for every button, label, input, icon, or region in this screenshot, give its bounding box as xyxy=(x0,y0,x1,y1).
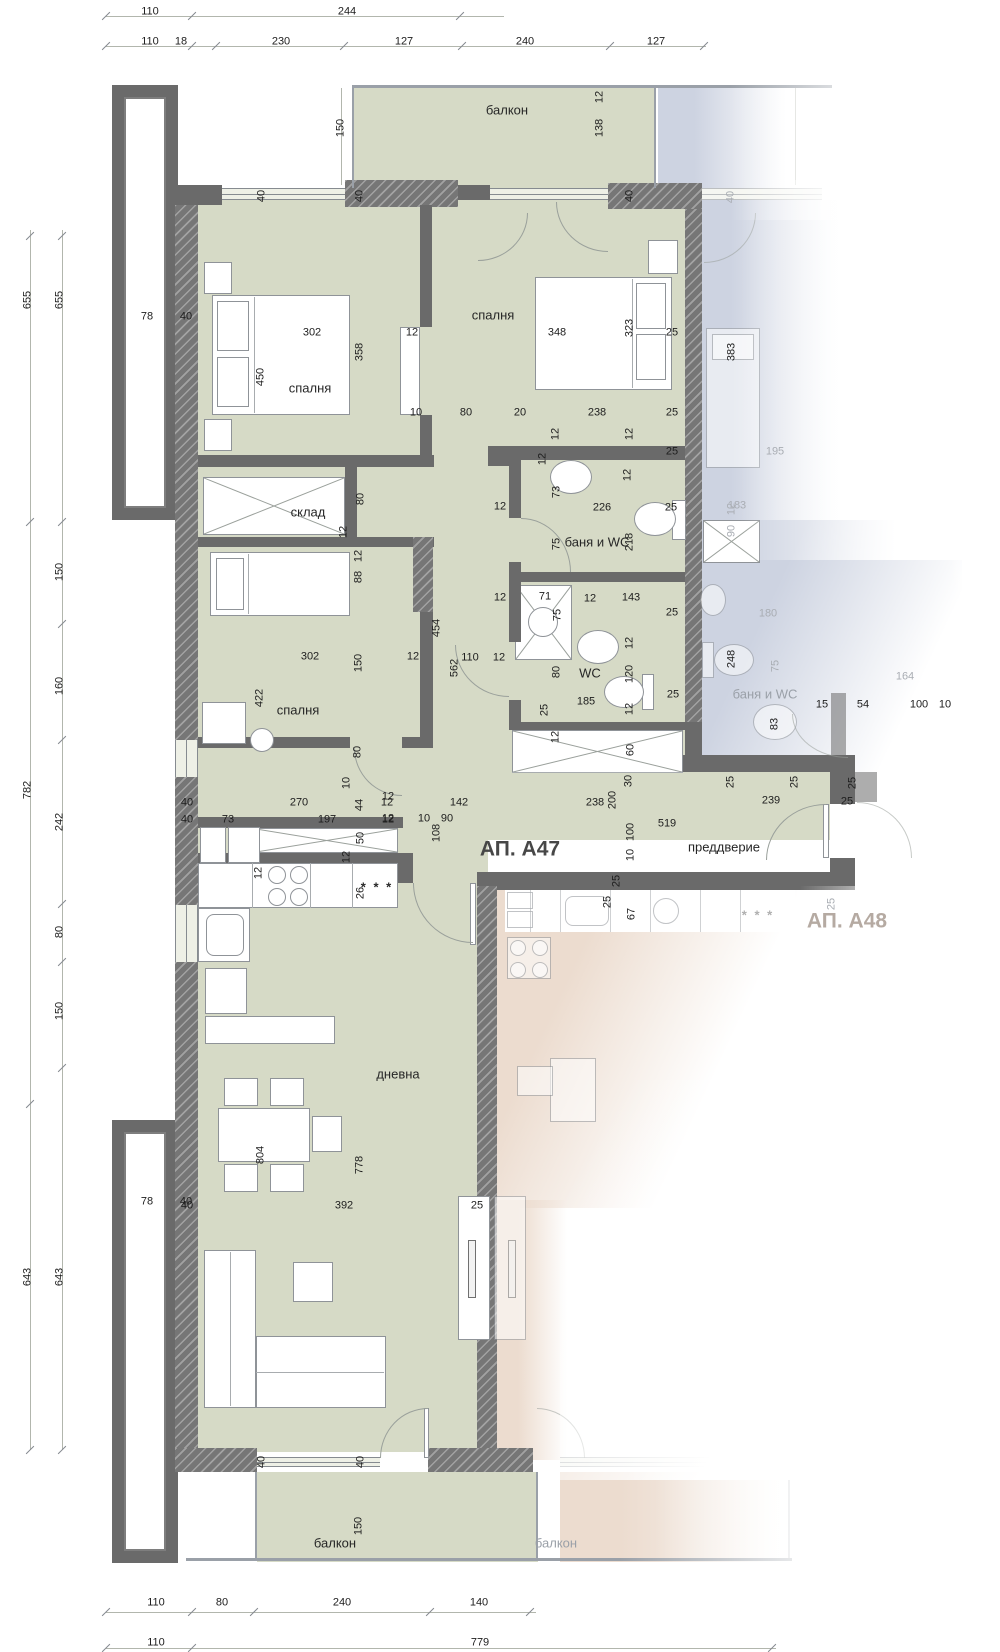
line xyxy=(654,85,656,188)
dim-label: 25 xyxy=(666,328,678,339)
line xyxy=(700,890,701,932)
dim-label: 25 xyxy=(848,777,859,789)
dim-label: 779 xyxy=(471,1638,489,1649)
room-label-wc: WC xyxy=(579,667,601,680)
window-bedroom2 xyxy=(490,188,608,200)
dim-label: 40 xyxy=(625,190,636,202)
line xyxy=(352,85,354,188)
dim-label: 110 xyxy=(461,653,479,664)
window-left-2 xyxy=(175,905,198,962)
dim-label: 75 xyxy=(771,660,782,672)
dim-label: 10 xyxy=(626,849,637,861)
dim-label: 12 xyxy=(551,428,562,440)
cabinet xyxy=(205,968,247,1014)
dim-label: 10 xyxy=(342,777,353,789)
wall xyxy=(413,537,433,612)
dim-label: 12 xyxy=(342,851,353,863)
pillow xyxy=(217,301,249,351)
burner xyxy=(290,866,308,884)
apartment-label-a47: АП. А47 xyxy=(480,839,560,860)
neighbor-burner xyxy=(510,962,526,978)
dim-label: 197 xyxy=(318,815,336,826)
dim-label: 25 xyxy=(667,690,679,701)
dim-label: 140 xyxy=(470,1598,488,1609)
dim-label: 185 xyxy=(577,697,595,708)
dim-label: 218 xyxy=(625,533,636,551)
dim-label: 83 xyxy=(770,718,781,730)
dim-label: 12 xyxy=(625,428,636,440)
kitchen-unit xyxy=(228,827,260,863)
tv xyxy=(468,1240,476,1298)
sideboard xyxy=(205,1016,335,1044)
dim-label: 110 xyxy=(141,7,159,18)
pillow xyxy=(636,334,666,380)
neighbor-chair xyxy=(517,1066,553,1096)
room-label-bath: баня и WC xyxy=(565,536,630,549)
neighbor-hob xyxy=(653,898,679,924)
dim-label: 75 xyxy=(552,538,563,550)
dim-label: 80 xyxy=(356,493,367,505)
burner xyxy=(268,888,286,906)
nightstand xyxy=(648,240,678,274)
fade-overlay xyxy=(950,540,1000,800)
dim-label: 778 xyxy=(355,1156,366,1174)
dim-label: 15 xyxy=(816,700,828,711)
window-bedroom1 xyxy=(222,188,345,200)
wall xyxy=(198,455,434,467)
dim-label: 248 xyxy=(727,650,738,668)
dim-label: 110 xyxy=(141,37,159,48)
dim-label: 50 xyxy=(356,832,367,844)
dim-label: 44 xyxy=(355,799,366,811)
dim-label: 562 xyxy=(450,659,461,677)
balcony-bottom-floor xyxy=(257,1472,538,1562)
dim-label: 25 xyxy=(612,875,623,887)
dim-label: 12 xyxy=(551,731,562,743)
dim-label: 150 xyxy=(336,119,347,137)
kitchen-mark: * * * xyxy=(361,881,393,894)
dim-label: 270 xyxy=(290,798,308,809)
dim-label: 40 xyxy=(180,312,192,323)
burner xyxy=(290,888,308,906)
wall xyxy=(398,853,413,883)
dim-label: 643 xyxy=(23,1268,34,1286)
floor-plan-canvas: 11024411018230127240127150балкон12138655… xyxy=(0,0,1000,1652)
wall xyxy=(198,537,434,547)
dim-label: 73 xyxy=(222,815,234,826)
dim-label: 12 xyxy=(406,328,418,339)
dim-label: 25 xyxy=(665,503,677,514)
chair xyxy=(270,1164,304,1192)
coffee-table xyxy=(293,1262,333,1302)
wall xyxy=(420,205,432,327)
dim-label: 80 xyxy=(460,408,472,419)
dim-label: 25 xyxy=(603,896,614,908)
dim-label: 195 xyxy=(766,447,784,458)
room-label-neighbor-balcony: балкон xyxy=(535,1537,577,1550)
sliding-door-panel xyxy=(400,327,420,415)
desk xyxy=(202,702,246,744)
nightstand xyxy=(204,262,232,294)
dim-label: 454 xyxy=(432,619,443,637)
line xyxy=(255,1472,257,1560)
dim-label: 110 xyxy=(147,1638,165,1649)
dim-label: 150 xyxy=(354,654,365,672)
pillow xyxy=(216,558,244,610)
dim-label: 78 xyxy=(141,1197,153,1208)
dim-label: 238 xyxy=(586,798,604,809)
room-label-balcony-top: балкон xyxy=(486,104,528,117)
dim-label: 71 xyxy=(539,592,551,603)
dim-label: 244 xyxy=(338,7,356,18)
dim-label: 73 xyxy=(552,486,563,498)
dim-label: 80 xyxy=(55,926,66,938)
wall xyxy=(402,737,433,748)
dim-label: 80 xyxy=(552,666,563,678)
dim-label: 226 xyxy=(593,503,611,514)
dim-label: 90 xyxy=(441,814,453,825)
dim-label: 75 xyxy=(553,609,564,621)
neighbor-burner xyxy=(532,940,548,956)
dim-label: 12 xyxy=(584,594,596,605)
dim-label: 358 xyxy=(355,343,366,361)
dim-label: 10 xyxy=(418,814,430,825)
dim-label: 80 xyxy=(216,1598,228,1609)
dim-label: 25 xyxy=(841,797,853,808)
line xyxy=(650,890,651,932)
wall xyxy=(685,722,702,755)
kitchen-cabinet xyxy=(255,828,398,853)
line xyxy=(106,1612,536,1613)
pillow xyxy=(636,283,666,329)
dim-label: 12 xyxy=(595,91,606,103)
dim-label: 302 xyxy=(301,652,319,663)
wc-sink xyxy=(577,630,619,664)
wall xyxy=(509,582,521,642)
dim-label: 655 xyxy=(23,291,34,309)
party-wall-upper xyxy=(685,209,702,745)
dim-label: 242 xyxy=(55,813,66,831)
dim-label: 422 xyxy=(255,689,266,707)
wall xyxy=(175,185,198,740)
dim-label: 238 xyxy=(588,408,606,419)
line xyxy=(106,1648,776,1649)
stool xyxy=(250,728,274,752)
dim-label: 25 xyxy=(827,898,838,910)
dim-label: 54 xyxy=(857,700,869,711)
dim-label: 40 xyxy=(356,1456,367,1468)
fade-overlay xyxy=(740,180,1000,560)
dim-label: 12 xyxy=(339,526,350,538)
wall xyxy=(509,446,521,518)
neighbor-toilet-tank xyxy=(702,642,714,678)
dim-label: 239 xyxy=(762,796,780,807)
apartment-label-a48: АП. А48 xyxy=(807,911,887,932)
party-wall-lower xyxy=(477,886,497,1448)
dim-label: 302 xyxy=(303,328,321,339)
neighbor-burner xyxy=(532,962,548,978)
dim-label: 40 xyxy=(257,1456,268,1468)
dim-label: 40 xyxy=(257,190,268,202)
neighbor-burner xyxy=(510,940,526,956)
dim-label: 78 xyxy=(141,312,153,323)
dim-label: 183 xyxy=(728,501,746,512)
dim-label: 150 xyxy=(55,1002,66,1020)
line xyxy=(256,1372,384,1373)
room-label-neighbor-bath: баня и WC xyxy=(733,688,798,701)
neighbor-kitchen-mark: * * * xyxy=(742,909,774,922)
wall xyxy=(175,1448,257,1472)
dim-label: 142 xyxy=(450,798,468,809)
dim-label: 12 xyxy=(623,469,634,481)
dim-label: 100 xyxy=(626,823,637,841)
dim-label: 25 xyxy=(666,408,678,419)
dim-label: 782 xyxy=(23,781,34,799)
dim-label: 100 xyxy=(910,700,928,711)
dim-label: 138 xyxy=(595,119,606,137)
dim-label: 180 xyxy=(759,609,777,620)
chair xyxy=(224,1078,258,1106)
dim-label: 60 xyxy=(626,744,637,756)
dim-label: 12 xyxy=(625,637,636,649)
dim-label: 80 xyxy=(353,746,364,758)
line xyxy=(530,890,531,932)
dim-label: 150 xyxy=(354,1517,365,1535)
nightstand xyxy=(204,419,232,451)
dim-label: 348 xyxy=(548,328,566,339)
dim-label: 10 xyxy=(410,408,422,419)
dim-label: 383 xyxy=(727,343,738,361)
dim-label: 164 xyxy=(896,672,914,683)
fade-overlay xyxy=(560,1080,1000,1480)
neighbor-tv xyxy=(508,1240,516,1298)
dim-label: 90 xyxy=(727,525,738,537)
room-label-storage: склад xyxy=(291,506,326,519)
dim-label: 25 xyxy=(726,776,737,788)
window-left-1 xyxy=(175,740,198,777)
line xyxy=(560,890,561,932)
dim-label: 519 xyxy=(658,819,676,830)
dim-label: 10 xyxy=(939,700,951,711)
dim-label: 25 xyxy=(666,447,678,458)
neighbor-door-arc-entry xyxy=(857,802,912,858)
fridge xyxy=(200,827,226,863)
dim-label: 160 xyxy=(55,677,66,695)
room-label-balcony-bottom: балкон xyxy=(314,1537,356,1550)
dim-label: 150 xyxy=(55,563,66,581)
fade-overlay xyxy=(620,1472,1000,1592)
dim-label: 12 xyxy=(494,593,506,604)
dim-label: 25 xyxy=(790,776,801,788)
dim-label: 240 xyxy=(516,37,534,48)
dim-label: 30 xyxy=(624,775,635,787)
room-label-bedroom1: спалня xyxy=(289,382,332,395)
wall xyxy=(175,185,222,205)
dim-label: 127 xyxy=(395,37,413,48)
dim-label: 110 xyxy=(147,1598,165,1609)
hall-north-wall xyxy=(683,755,855,772)
dim-label: 40 xyxy=(181,1201,193,1212)
wall xyxy=(509,722,685,730)
dim-label: 804 xyxy=(256,1146,267,1164)
chair xyxy=(224,1164,258,1192)
dim-label: 12 xyxy=(407,652,419,663)
dim-label: 40 xyxy=(181,798,193,809)
neighbor-small-sink xyxy=(700,584,726,616)
dim-label: 392 xyxy=(335,1201,353,1212)
pillow xyxy=(217,357,249,407)
dim-label: 40 xyxy=(726,191,737,203)
shaft-top-inner xyxy=(124,97,166,508)
dim-label: 67 xyxy=(627,908,638,920)
dim-label: 12 xyxy=(381,798,393,809)
dim-label: 12 xyxy=(382,815,394,826)
dim-label: 643 xyxy=(55,1268,66,1286)
dim-label: 143 xyxy=(622,593,640,604)
hall-closet xyxy=(512,730,683,773)
dim-label: 200 xyxy=(608,791,619,809)
dim-label: 88 xyxy=(354,571,365,583)
chair xyxy=(312,1116,342,1152)
dim-label: 12 xyxy=(625,703,636,715)
dim-label: 240 xyxy=(333,1598,351,1609)
line xyxy=(254,297,255,413)
line xyxy=(106,16,504,17)
room-label-bedroom3: спалня xyxy=(277,704,320,717)
wall xyxy=(428,1448,533,1472)
dim-label: 12 xyxy=(493,653,505,664)
chair xyxy=(270,1078,304,1106)
dim-label: 450 xyxy=(256,368,267,386)
dim-label: 655 xyxy=(55,291,66,309)
dim-label: 25 xyxy=(666,608,678,619)
dim-label: 12 xyxy=(538,453,549,465)
line xyxy=(230,1252,231,1406)
dim-label: 323 xyxy=(625,319,636,337)
dim-label: 25 xyxy=(471,1201,483,1212)
room-label-bedroom2: спалня xyxy=(472,309,515,322)
dim-label: 12 xyxy=(254,867,265,879)
line xyxy=(248,554,249,614)
dim-label: 20 xyxy=(514,408,526,419)
dim-label: 230 xyxy=(272,37,290,48)
room-label-hall: преддверие xyxy=(688,841,760,854)
dim-label: 127 xyxy=(647,37,665,48)
dim-label: 12 xyxy=(354,550,365,562)
line xyxy=(512,772,683,773)
line xyxy=(352,863,353,908)
wall xyxy=(458,185,490,200)
wall xyxy=(509,572,685,582)
burner xyxy=(268,866,286,884)
dim-label: 25 xyxy=(540,704,551,716)
dim-label: 18 xyxy=(175,37,187,48)
hall-south-wall xyxy=(477,872,855,890)
room-label-living: дневна xyxy=(376,1068,419,1081)
dim-label: 120 xyxy=(625,665,636,683)
dim-label: 40 xyxy=(355,190,366,202)
dim-label: 108 xyxy=(432,824,443,842)
kitchen-sink xyxy=(206,914,244,956)
dim-label: 12 xyxy=(494,502,506,513)
dim-label: 40 xyxy=(181,815,193,826)
line xyxy=(310,863,311,908)
wall xyxy=(420,415,432,455)
